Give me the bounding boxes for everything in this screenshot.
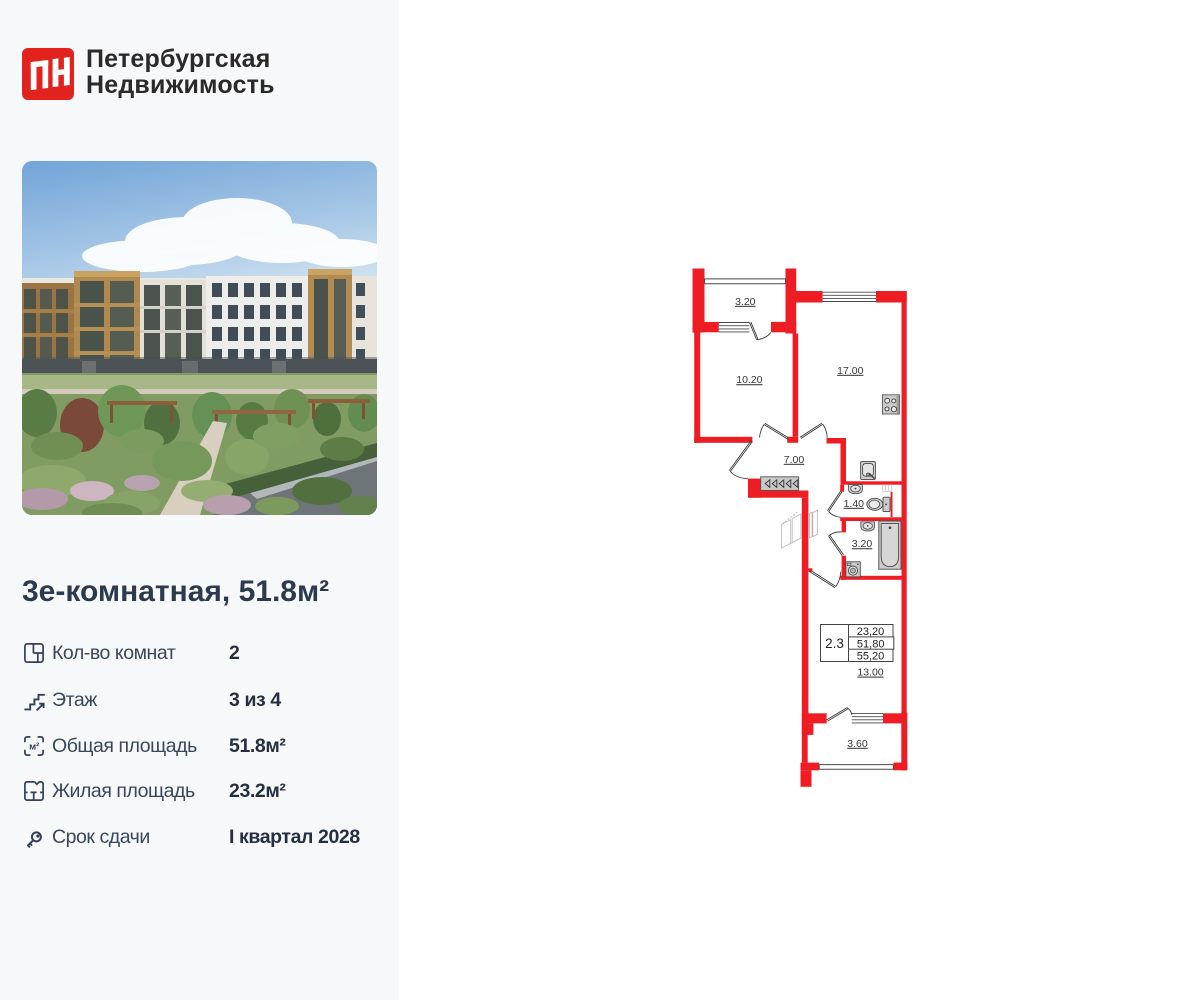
svg-text:3.60: 3.60: [847, 738, 868, 750]
svg-text:10.20: 10.20: [736, 374, 762, 386]
svg-text:55,20: 55,20: [857, 651, 885, 663]
svg-text:2.3: 2.3: [825, 636, 844, 651]
svg-text:17.00: 17.00: [837, 365, 863, 377]
svg-text:51,80: 51,80: [857, 638, 885, 650]
svg-text:23,20: 23,20: [857, 626, 885, 638]
svg-text:7.00: 7.00: [784, 454, 805, 466]
svg-text:3.20: 3.20: [735, 296, 756, 308]
svg-text:3.20: 3.20: [852, 538, 873, 550]
svg-text:1.40: 1.40: [844, 498, 865, 510]
svg-text:13.00: 13.00: [857, 667, 883, 679]
svg-text:м²: м²: [29, 742, 39, 753]
